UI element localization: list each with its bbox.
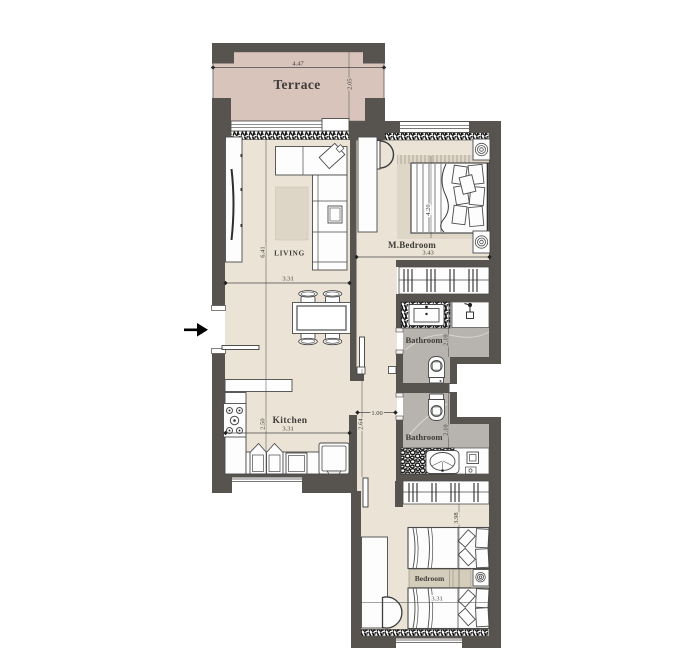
svg-text:2.50: 2.50 — [260, 418, 267, 429]
svg-text:2.10: 2.10 — [443, 334, 450, 345]
svg-text:2.05: 2.05 — [347, 78, 354, 89]
svg-text:2.10: 2.10 — [443, 424, 450, 435]
svg-text:3.31: 3.31 — [282, 426, 293, 433]
svg-text:3.98: 3.98 — [453, 512, 460, 523]
svg-text:6.41: 6.41 — [260, 246, 267, 257]
svg-text:3.31: 3.31 — [431, 596, 442, 603]
svg-text:3.43: 3.43 — [422, 250, 433, 257]
svg-text:4.20: 4.20 — [425, 204, 432, 215]
svg-text:Bathroom: Bathroom — [405, 335, 443, 345]
svg-text:Bathroom: Bathroom — [405, 432, 443, 442]
svg-text:2.64: 2.64 — [358, 418, 365, 430]
svg-text:4.47: 4.47 — [292, 61, 304, 68]
svg-text:3.31: 3.31 — [282, 276, 293, 283]
svg-text:LIVING: LIVING — [274, 249, 305, 258]
svg-text:Kitchen: Kitchen — [273, 416, 308, 426]
svg-text:Terrace: Terrace — [273, 77, 320, 92]
svg-text:Bedroom: Bedroom — [415, 574, 445, 583]
svg-text:M.Bedroom: M.Bedroom — [388, 240, 436, 250]
svg-text:1.00: 1.00 — [371, 410, 382, 417]
